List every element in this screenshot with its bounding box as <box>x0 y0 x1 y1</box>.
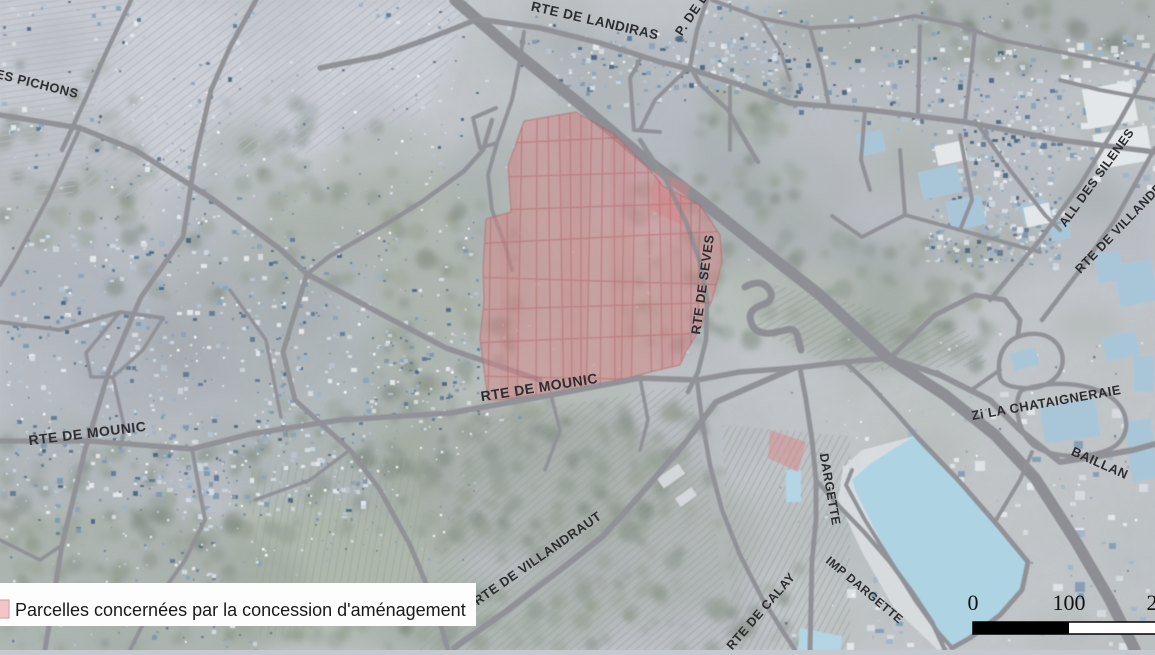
svg-text:Parcelles concernées par la co: Parcelles concernées par la concession d… <box>15 600 466 620</box>
svg-text:100: 100 <box>1053 590 1086 615</box>
svg-text:0: 0 <box>968 590 979 615</box>
svg-text:200: 200 <box>1147 590 1155 615</box>
